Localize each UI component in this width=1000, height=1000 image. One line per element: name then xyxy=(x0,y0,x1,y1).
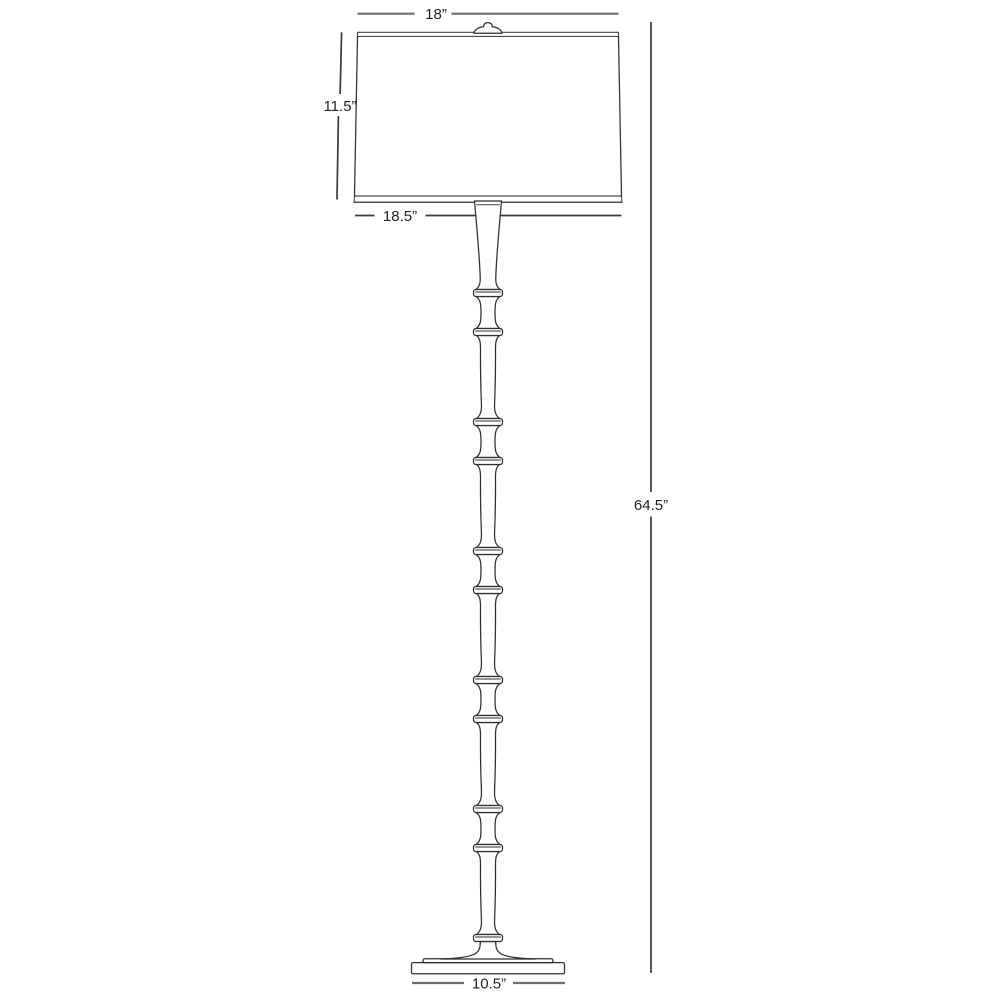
base-collar-ring xyxy=(474,935,503,942)
base-plate xyxy=(412,963,565,974)
bamboo-stem-unit xyxy=(474,419,503,548)
bamboo-stem-unit xyxy=(474,548,503,677)
shade-right-edge xyxy=(619,36,622,196)
shade-bottom-band-right-edge xyxy=(622,196,623,202)
dimension-label-overall-height: 64.5” xyxy=(634,497,668,514)
bamboo-stem-unit xyxy=(474,806,503,935)
lamp-dimension-diagram: 18” 11.5” 18.5” 64.5” 10.5” xyxy=(0,0,1000,1000)
bamboo-stem-unit xyxy=(474,677,503,806)
lamp-shade xyxy=(354,32,622,202)
shade-bottom-band-left-edge xyxy=(354,196,355,202)
shade-left-edge xyxy=(355,36,358,196)
dimension-label-shade-top-width: 18” xyxy=(425,6,447,23)
lamp-base xyxy=(412,935,565,974)
stem-neck-body xyxy=(475,201,502,290)
bamboo-stem-unit xyxy=(474,290,503,419)
dimension-line xyxy=(337,116,338,200)
stem-neck xyxy=(475,201,502,290)
dimension-line xyxy=(340,32,342,94)
finial xyxy=(474,23,502,34)
dimension-label-shade-bottom-width: 18.5” xyxy=(383,208,417,225)
dimension-label-shade-height: 11.5” xyxy=(323,98,356,115)
dimension-shade-height xyxy=(337,32,342,199)
base-flare xyxy=(441,942,535,960)
dimension-label-base-width: 10.5” xyxy=(472,976,506,993)
